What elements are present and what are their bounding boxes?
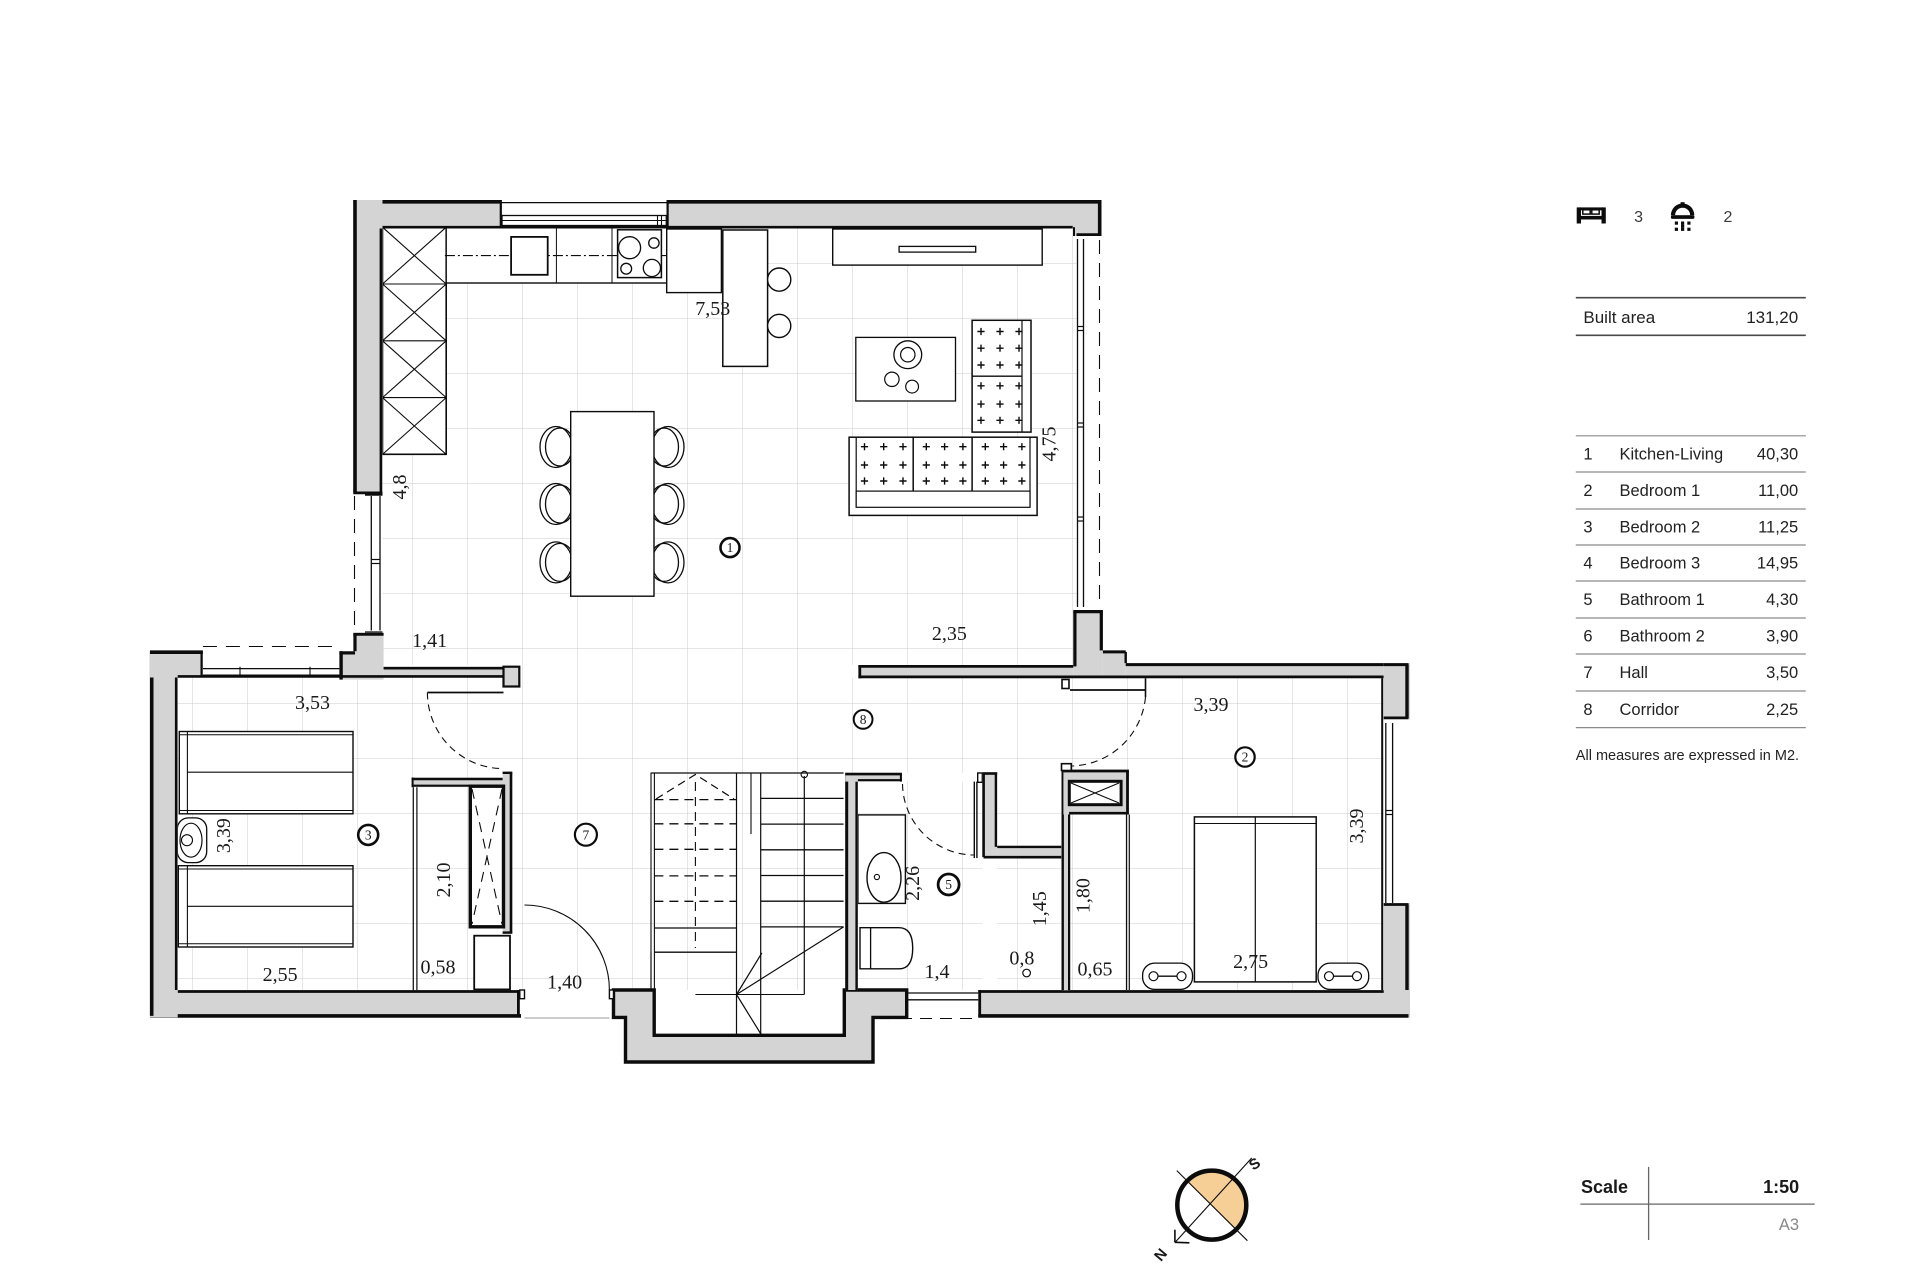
svg-text:2: 2 [1242, 750, 1249, 765]
svg-text:1,4: 1,4 [925, 961, 950, 983]
svg-text:8: 8 [1583, 701, 1592, 719]
svg-text:8: 8 [860, 712, 867, 727]
svg-text:2,25: 2,25 [1766, 701, 1798, 719]
svg-text:40,30: 40,30 [1757, 445, 1798, 463]
svg-text:7: 7 [1583, 664, 1592, 682]
svg-text:3: 3 [365, 828, 372, 843]
svg-text:All measures are expressed in: All measures are expressed in M2. [1576, 748, 1799, 764]
svg-text:0,65: 0,65 [1078, 959, 1113, 981]
svg-text:2,55: 2,55 [263, 964, 298, 986]
svg-text:7: 7 [583, 827, 590, 842]
svg-text:2: 2 [1583, 482, 1592, 500]
svg-text:2,75: 2,75 [1233, 951, 1268, 973]
svg-text:4,75: 4,75 [1038, 427, 1060, 462]
svg-text:Kitchen-Living: Kitchen-Living [1620, 445, 1724, 463]
svg-text:1: 1 [1583, 445, 1592, 463]
svg-text:0,8: 0,8 [1009, 948, 1034, 970]
svg-text:131,20: 131,20 [1746, 308, 1798, 327]
svg-text:11,25: 11,25 [1758, 519, 1798, 537]
svg-text:Bathroom 1: Bathroom 1 [1620, 591, 1705, 609]
svg-text:1,45: 1,45 [1029, 891, 1051, 926]
svg-text:Built area: Built area [1583, 308, 1655, 327]
svg-text:1: 1 [727, 540, 734, 555]
svg-text:2,10: 2,10 [433, 863, 455, 898]
svg-text:A3: A3 [1779, 1216, 1799, 1234]
svg-text:6: 6 [1583, 628, 1592, 646]
svg-text:1,41: 1,41 [412, 630, 447, 652]
svg-text:3,39: 3,39 [1194, 694, 1229, 716]
svg-text:Corridor: Corridor [1620, 701, 1680, 719]
svg-text:14,95: 14,95 [1757, 555, 1798, 573]
svg-text:2,26: 2,26 [902, 866, 924, 901]
svg-text:2: 2 [1724, 209, 1733, 226]
svg-text:0,58: 0,58 [421, 957, 456, 979]
svg-text:1:50: 1:50 [1763, 1177, 1799, 1197]
svg-text:Bedroom 3: Bedroom 3 [1620, 555, 1701, 573]
svg-text:1,40: 1,40 [547, 972, 582, 994]
svg-text:7,53: 7,53 [695, 298, 730, 320]
svg-text:11,00: 11,00 [1758, 482, 1798, 500]
svg-text:4: 4 [1583, 555, 1592, 573]
svg-text:3,53: 3,53 [295, 692, 330, 714]
svg-text:3,50: 3,50 [1766, 664, 1798, 682]
svg-text:Scale: Scale [1581, 1177, 1628, 1197]
svg-text:3,39: 3,39 [1346, 809, 1368, 844]
svg-text:Bathroom 2: Bathroom 2 [1620, 628, 1705, 646]
svg-text:Hall: Hall [1620, 664, 1648, 682]
svg-text:3: 3 [1583, 519, 1592, 537]
svg-text:5: 5 [945, 877, 952, 892]
svg-text:4,30: 4,30 [1766, 591, 1798, 609]
svg-text:3: 3 [1634, 209, 1643, 226]
svg-text:3,90: 3,90 [1766, 628, 1798, 646]
svg-text:2,35: 2,35 [932, 623, 967, 645]
svg-text:3,39: 3,39 [213, 818, 235, 853]
svg-text:4,8: 4,8 [389, 475, 411, 500]
svg-text:1,80: 1,80 [1072, 878, 1094, 913]
svg-text:Bedroom 2: Bedroom 2 [1620, 519, 1701, 537]
svg-text:5: 5 [1583, 591, 1592, 609]
svg-text:Bedroom 1: Bedroom 1 [1620, 482, 1701, 500]
